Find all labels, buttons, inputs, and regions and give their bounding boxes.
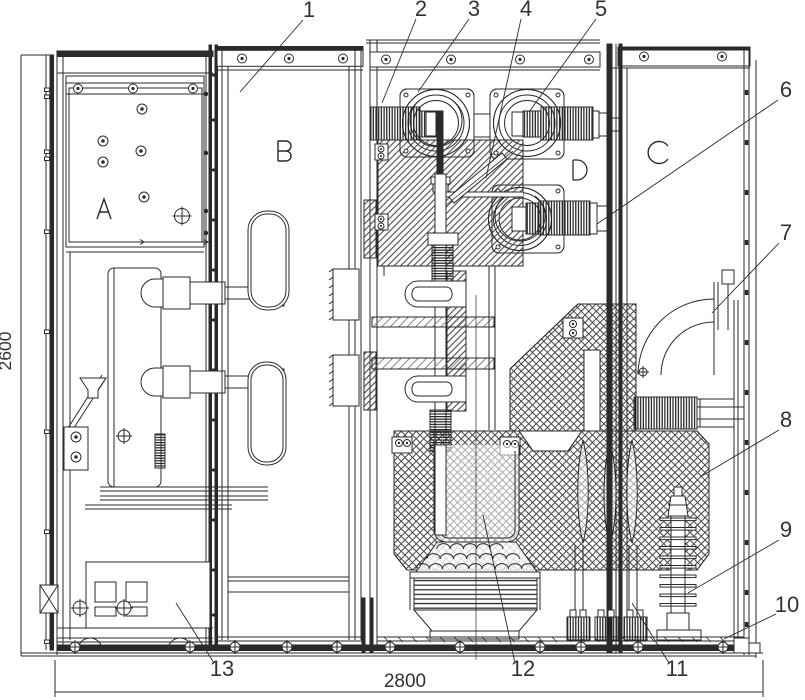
svg-text:5: 5 xyxy=(595,0,607,21)
svg-text:2600: 2600 xyxy=(0,331,15,370)
svg-text:9: 9 xyxy=(780,517,792,542)
svg-text:13: 13 xyxy=(210,656,234,681)
svg-text:10: 10 xyxy=(775,592,799,617)
svg-text:7: 7 xyxy=(780,220,792,245)
svg-text:8: 8 xyxy=(780,407,792,432)
svg-text:4: 4 xyxy=(520,0,532,21)
svg-text:2: 2 xyxy=(415,0,427,21)
svg-text:11: 11 xyxy=(666,656,689,681)
svg-text:3: 3 xyxy=(468,0,480,21)
svg-text:12: 12 xyxy=(511,656,535,681)
svg-text:1: 1 xyxy=(303,0,315,22)
svg-text:6: 6 xyxy=(780,77,792,102)
svg-text:2800: 2800 xyxy=(384,671,426,692)
